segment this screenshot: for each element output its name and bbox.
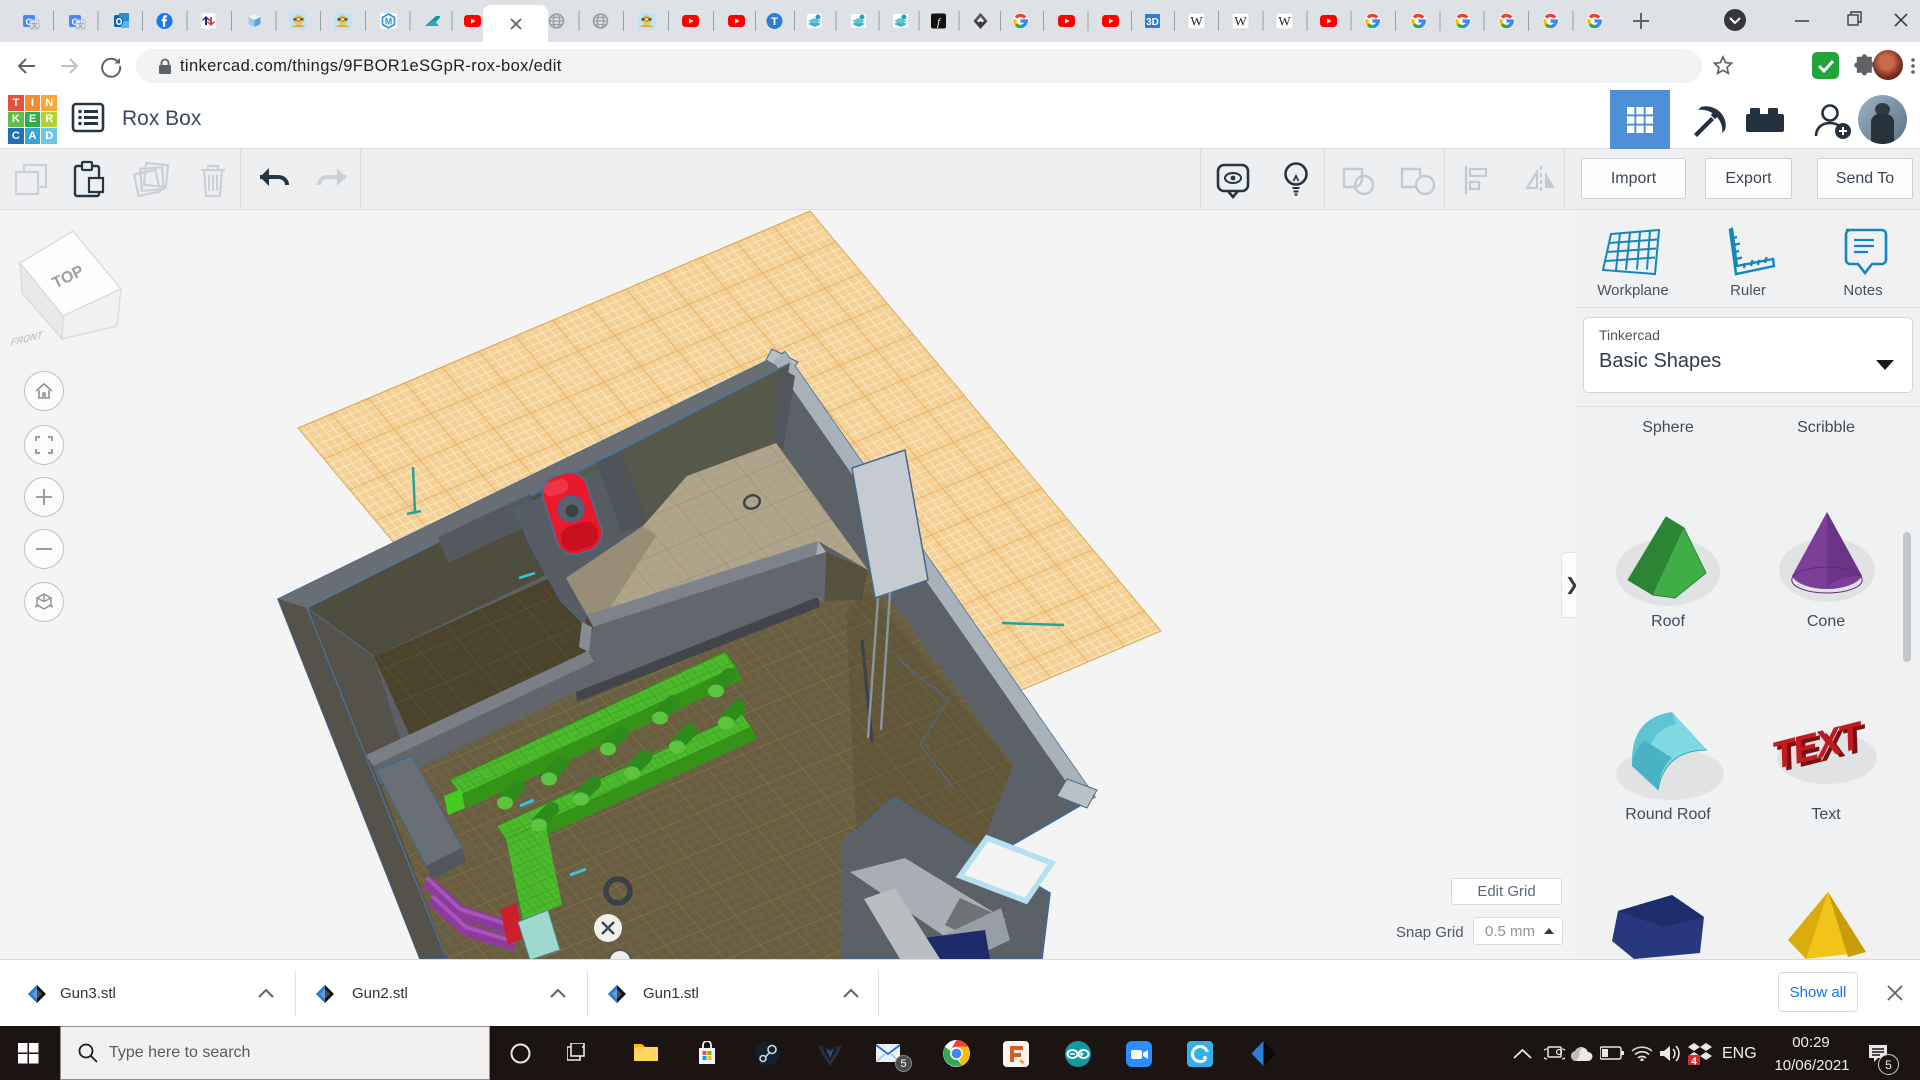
svg-text:4: 4 (1691, 1057, 1697, 1066)
svg-text:FRONT: FRONT (9, 330, 45, 349)
